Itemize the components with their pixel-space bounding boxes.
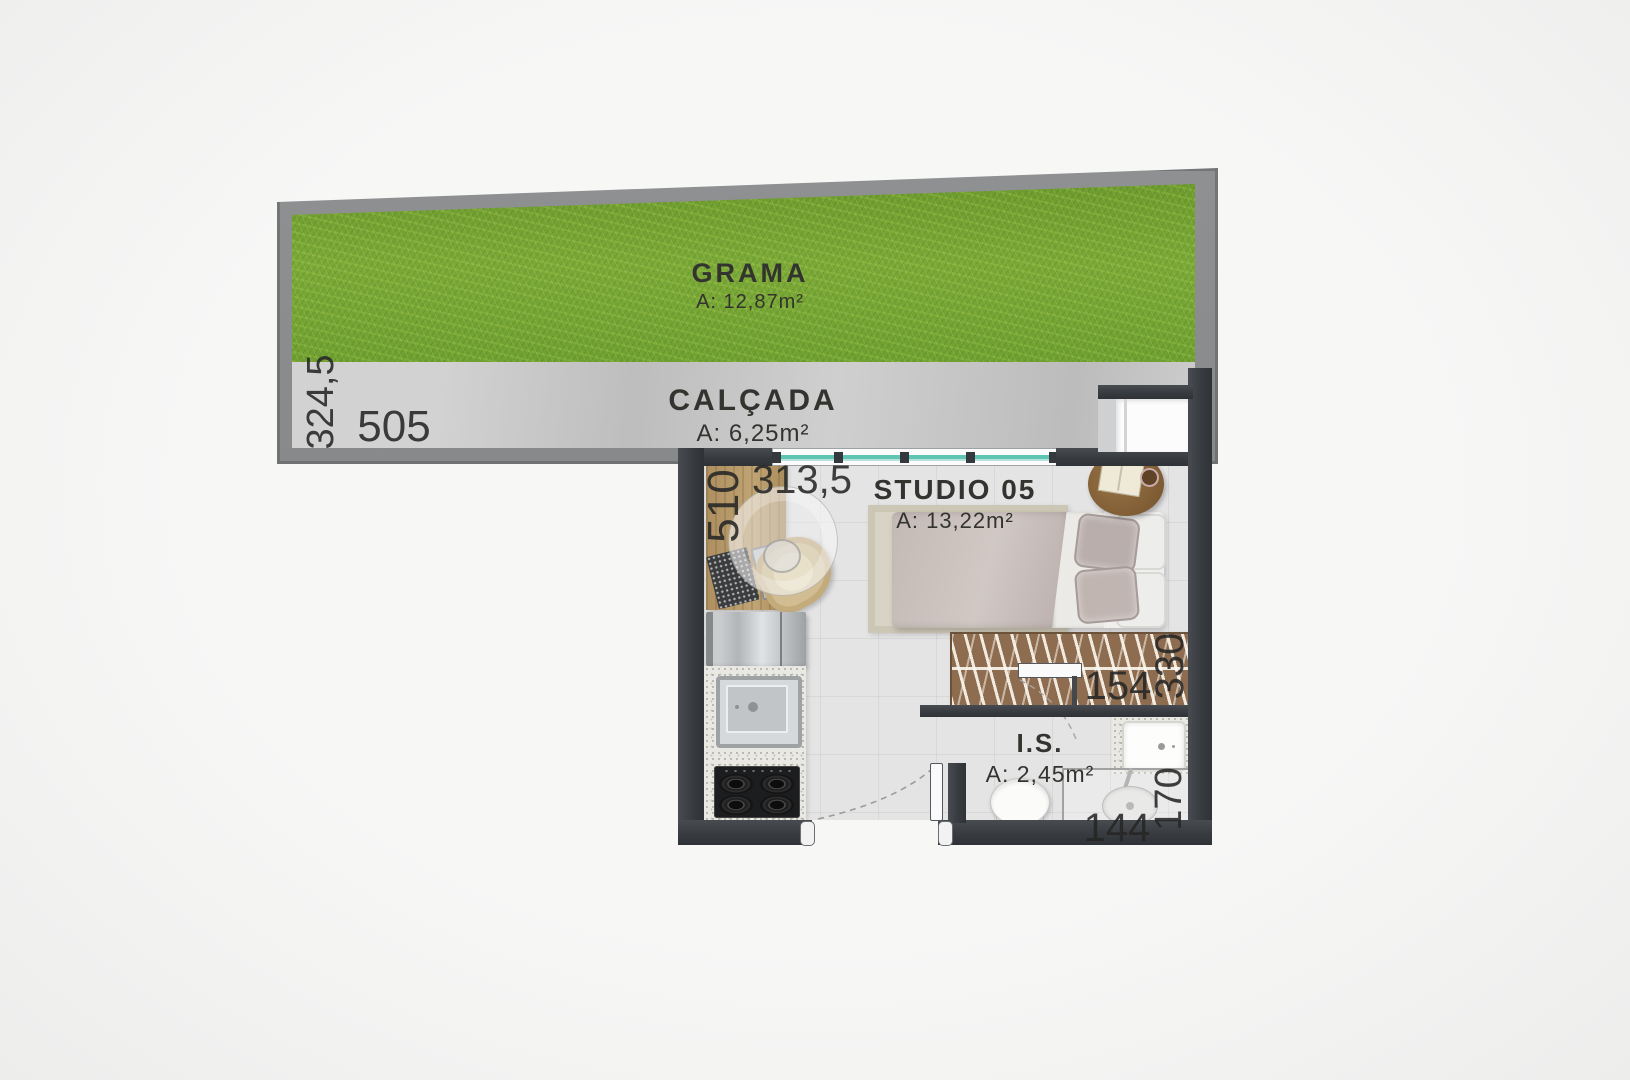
wall-right <box>1188 368 1212 845</box>
entry-niche-jamb <box>1098 399 1116 452</box>
calcada-name: CALÇADA <box>600 384 906 418</box>
door-jamb-cap <box>800 821 815 846</box>
bed-pillow-taupe-1 <box>1073 512 1141 573</box>
is-area: A: 2,45m² <box>960 761 1120 788</box>
refrigerator <box>706 612 806 666</box>
studio-name: STUDIO 05 <box>840 474 1070 506</box>
wall-entry-niche <box>1098 385 1193 399</box>
grama-name: GRAMA <box>600 258 900 289</box>
bed-pillow-taupe-2 <box>1074 565 1140 624</box>
window-mullion <box>966 452 975 463</box>
dim-garden-depth: 324,5 <box>300 339 342 465</box>
entry-door <box>930 763 943 821</box>
dim-shower-width: 144 <box>1060 806 1174 848</box>
entry-niche <box>1116 399 1188 452</box>
calcada-label: CALÇADA A: 6,25m² <box>600 384 906 448</box>
calcada-area: A: 6,25m² <box>600 420 906 448</box>
burner <box>760 795 794 815</box>
dim-garden-width: 505 <box>338 402 450 448</box>
studio-area: A: 13,22m² <box>840 508 1070 534</box>
dim-bath-side: 330 <box>1148 620 1188 712</box>
wall-bottom-left <box>678 820 812 845</box>
grama-label: GRAMA A: 12,87m² <box>600 258 900 314</box>
is-label: I.S. A: 2,45m² <box>960 728 1120 788</box>
burner <box>719 774 753 794</box>
grama-area: A: 12,87m² <box>600 291 900 314</box>
burner <box>719 795 753 815</box>
kitchen-sink <box>716 676 802 748</box>
floor-plan-page: GRAMA A: 12,87m² CALÇADA A: 6,25m² <box>0 0 1630 1080</box>
cup <box>1140 468 1159 487</box>
is-name: I.S. <box>960 728 1120 759</box>
studio-label: STUDIO 05 A: 13,22m² <box>840 474 1070 534</box>
dim-studio-width: 313,5 <box>737 458 867 500</box>
entry-niche-door-line <box>1124 399 1127 452</box>
window-mullion <box>900 452 909 463</box>
door-jamb-cap <box>938 821 953 846</box>
burner <box>760 774 794 794</box>
cooktop <box>714 766 800 818</box>
